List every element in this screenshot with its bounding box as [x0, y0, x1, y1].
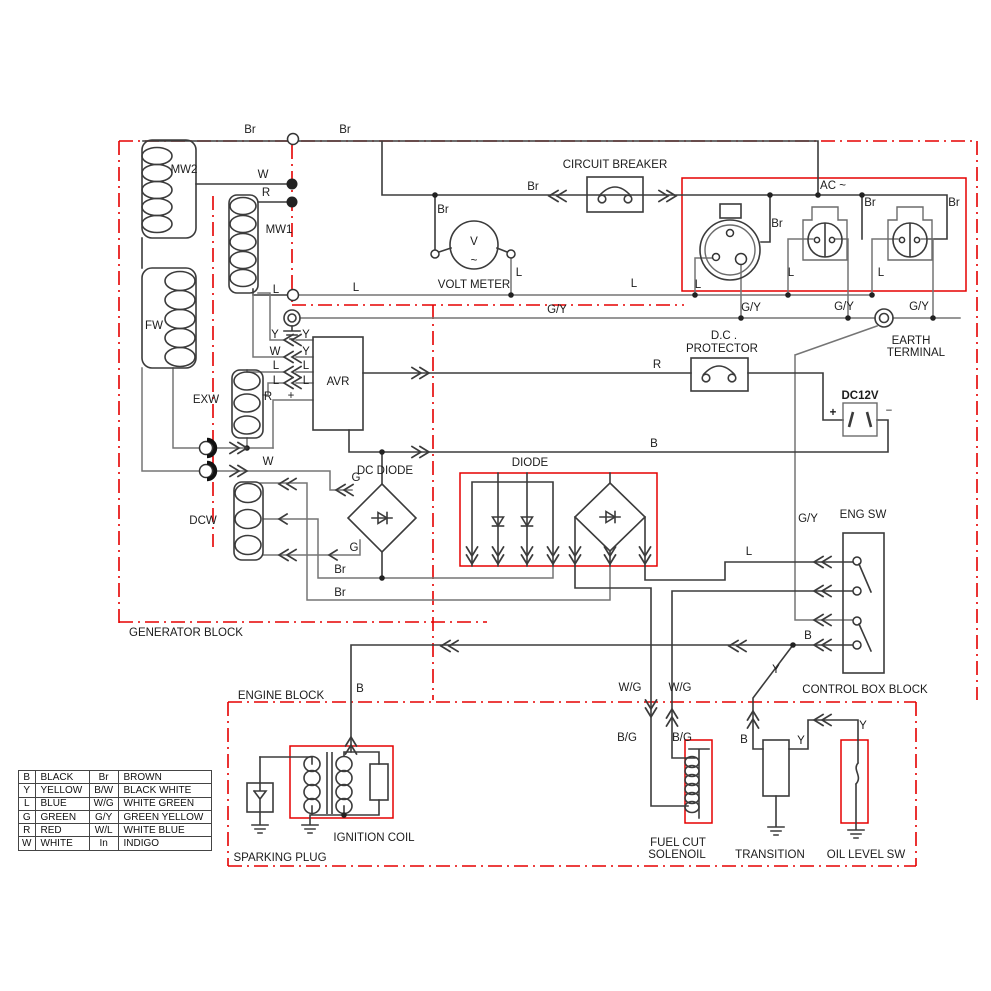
wire-label: Y	[302, 346, 310, 358]
legend-row: WWHITEInINDIGO	[19, 837, 212, 850]
label-dc-protector-2: PROTECTOR	[686, 343, 758, 355]
legend-row: BBLACKBrBROWN	[19, 771, 212, 784]
label-volt-meter: VOLT METER	[438, 279, 510, 291]
wire-label: W	[263, 456, 274, 468]
legend-color-name: BLACK WHITE	[118, 784, 212, 797]
label-ac: AC ~	[820, 180, 846, 192]
legend-code: Y	[19, 784, 36, 797]
ac-outlet-3pin	[700, 204, 760, 280]
label-circuit-breaker: CIRCUIT BREAKER	[563, 159, 668, 171]
wire-label: L	[516, 267, 523, 279]
wire-label: Br	[948, 197, 960, 209]
wire-label: R	[653, 359, 661, 371]
ac-outlet-2pin-2	[888, 207, 932, 260]
diode-box	[460, 473, 657, 566]
wire-label: L	[695, 279, 702, 291]
wire-label: W	[270, 346, 281, 358]
label-dc12v: DC12V	[841, 390, 878, 402]
wire-label: L	[303, 375, 310, 387]
wire-label: Br	[244, 124, 256, 136]
volt-meter-ac-glyph: ~	[471, 255, 478, 267]
ac-outlet-2pin-1	[803, 207, 847, 260]
coil-mw1	[229, 195, 258, 293]
block-label-control-box: CONTROL BOX BLOCK	[802, 684, 928, 696]
label-fuel-cut-1: FUEL CUT	[650, 837, 706, 849]
wire-label: W/G	[669, 682, 692, 694]
wire-label: B	[650, 438, 658, 450]
oil-level-box	[841, 740, 868, 823]
wire-label: Y	[772, 664, 780, 676]
wire-label: G/Y	[798, 513, 818, 525]
coil-dcw	[234, 482, 263, 560]
wire-label: Br	[527, 181, 539, 193]
wire-label: L	[788, 267, 795, 279]
wire-label: L	[878, 267, 885, 279]
wire-label: Y	[302, 329, 310, 341]
wire-label: Br	[771, 218, 783, 230]
label-fuel-cut-2: SOLENOIL	[648, 849, 706, 861]
volt-meter-glyph: V	[470, 236, 478, 248]
wire-label: B/G	[672, 732, 692, 744]
legend-code: In	[89, 837, 118, 850]
label-fw: FW	[145, 320, 163, 332]
wire-label: Br	[864, 197, 876, 209]
labels: MW2MW1FWEXWDCWAVRV~VOLT METERCIRCUIT BRE…	[129, 124, 960, 864]
legend-color-name: GREEN	[35, 810, 89, 823]
wire-label: L	[746, 546, 753, 558]
label-earth-2: TERMINAL	[887, 347, 946, 359]
legend-color-name: RED	[35, 824, 89, 837]
wire-label: G/Y	[547, 304, 567, 316]
legend-code: B	[19, 771, 36, 784]
junction-dots	[244, 179, 936, 818]
legend-code: G/Y	[89, 810, 118, 823]
legend-code: W/L	[89, 824, 118, 837]
coil-fw	[142, 268, 196, 368]
coil-exw	[232, 370, 263, 438]
earth-terminal	[875, 309, 893, 327]
wire-label: L	[273, 375, 280, 387]
legend-row: LBLUEW/GWHITE GREEN	[19, 797, 212, 810]
wire-label: Br	[334, 564, 346, 576]
wire-label: Y	[859, 720, 867, 732]
wire-label: B/G	[617, 732, 637, 744]
legend-code: R	[19, 824, 36, 837]
wire-label: R	[264, 391, 272, 403]
wire-label: L	[273, 284, 280, 296]
label-diode: DIODE	[512, 457, 549, 469]
dc-protector	[691, 358, 748, 391]
wire-label: L	[353, 282, 360, 294]
wiring-diagram-page: MW2MW1FWEXWDCWAVRV~VOLT METERCIRCUIT BRE…	[0, 0, 991, 991]
wire-label: Y	[271, 329, 279, 341]
wire-label: B	[356, 683, 364, 695]
legend-color-name: WHITE BLUE	[118, 824, 212, 837]
wire-label: Br	[334, 587, 346, 599]
transition-box	[763, 740, 789, 796]
wire-label: G/Y	[834, 301, 854, 313]
wire-color-legend: BBLACKBrBROWNYYELLOWB/WBLACK WHITELBLUEW…	[18, 770, 212, 851]
legend-color-name: WHITE	[35, 837, 89, 850]
label-exw: EXW	[193, 394, 219, 406]
label-dcw: DCW	[189, 515, 217, 527]
label-mw1: MW1	[266, 224, 293, 236]
wire-label: G	[350, 542, 359, 554]
sparking-plug	[247, 757, 312, 824]
legend-code: W/G	[89, 797, 118, 810]
coil-mw2	[142, 140, 196, 238]
wire-label: L	[303, 360, 310, 372]
wire-label: W	[258, 169, 269, 181]
dc12v-socket	[843, 403, 877, 436]
label-earth-1: EARTH	[892, 335, 931, 347]
legend-color-name: WHITE GREEN	[118, 797, 212, 810]
legend-row: YYELLOWB/WBLACK WHITE	[19, 784, 212, 797]
eng-sw	[843, 533, 884, 673]
legend-code: G	[19, 810, 36, 823]
brush-1	[200, 440, 216, 456]
wire-label: L	[273, 360, 280, 372]
legend-row: GGREENG/YGREEN YELLOW	[19, 810, 212, 823]
legend-color-name: GREEN YELLOW	[118, 810, 212, 823]
wire-label: B	[740, 734, 748, 746]
legend-color-name: YELLOW	[35, 784, 89, 797]
ground-symbols	[252, 331, 864, 838]
label-mw2: MW2	[171, 164, 198, 176]
label-transition: TRANSITION	[735, 849, 805, 861]
wire-label: R	[262, 187, 270, 199]
diode-block	[493, 483, 646, 551]
label-dc-protector-1: D.C .	[711, 330, 737, 342]
label-plus: +	[830, 407, 837, 419]
wire-label: G/Y	[909, 301, 929, 313]
legend-code: Br	[89, 771, 118, 784]
legend-color-name: BLUE	[35, 797, 89, 810]
label-eng-sw: ENG SW	[840, 509, 887, 521]
legend-code: B/W	[89, 784, 118, 797]
wire-label: Y	[797, 735, 805, 747]
wire-label: Br	[437, 204, 449, 216]
legend-color-name: INDIGO	[118, 837, 212, 850]
label-minus: −	[886, 405, 893, 417]
fuel-cut-solenoid	[685, 749, 709, 818]
label-ignition-coil: IGNITION COIL	[333, 832, 415, 844]
wire-label: Br	[339, 124, 351, 136]
wire-label: G/Y	[741, 302, 761, 314]
label-oil-level-sw: OIL LEVEL SW	[827, 849, 906, 861]
label-avr: AVR	[327, 376, 350, 388]
legend-code: W	[19, 837, 36, 850]
block-label-engine: ENGINE BLOCK	[238, 690, 325, 702]
wire-label: L	[631, 278, 638, 290]
wire-label: +	[288, 390, 295, 402]
brush-2	[200, 463, 216, 479]
legend-row: RREDW/LWHITE BLUE	[19, 824, 212, 837]
legend-code: L	[19, 797, 36, 810]
label-sparking-plug: SPARKING PLUG	[233, 852, 326, 864]
legend-color-name: BROWN	[118, 771, 212, 784]
wire-label: W/G	[619, 682, 642, 694]
label-dc-diode: DC DIODE	[357, 465, 414, 477]
legend-color-name: BLACK	[35, 771, 89, 784]
wire-label: B	[804, 630, 812, 642]
wire-label: G	[352, 472, 361, 484]
wires	[142, 141, 960, 829]
block-label-generator: GENERATOR BLOCK	[129, 627, 243, 639]
